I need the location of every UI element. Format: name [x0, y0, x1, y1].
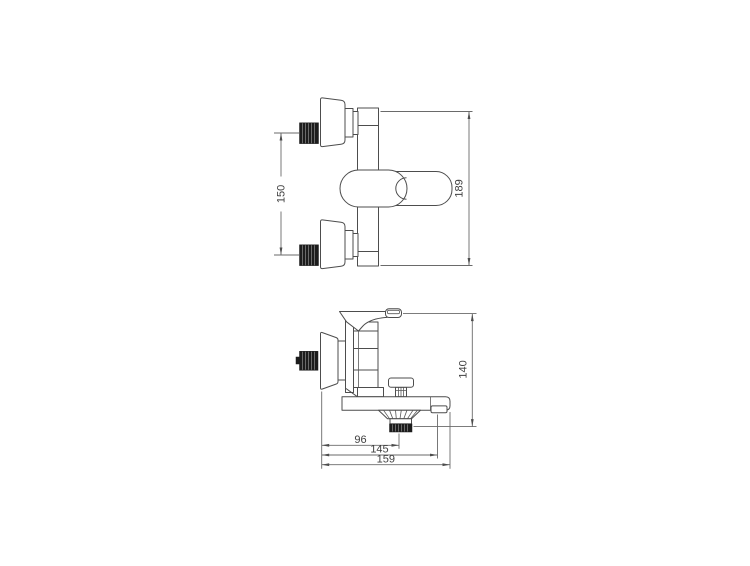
side-view: 140 96 145 159: [296, 309, 477, 469]
drawing-svg: 150 189: [0, 0, 750, 566]
dim-label-189: 189: [454, 179, 466, 197]
side-escutcheon: [321, 332, 339, 389]
front-inlet-upper: [300, 98, 359, 147]
front-dim-150: 150: [274, 133, 299, 255]
side-aerator-detail: [431, 406, 447, 413]
dim-label-140: 140: [458, 360, 470, 378]
side-back-plate: [346, 318, 354, 393]
front-handle-cap: [340, 170, 407, 207]
side-diverter-knob: [389, 378, 414, 397]
dim-label-96: 96: [354, 434, 366, 446]
side-shower-outlet: [379, 410, 421, 432]
side-body: [354, 322, 379, 388]
technical-drawing-canvas: 150 189: [0, 0, 750, 566]
dim-label-159: 159: [377, 453, 395, 465]
front-inlet-lower: [300, 220, 359, 269]
front-view: 150 189: [274, 98, 473, 269]
dim-label-150: 150: [276, 185, 288, 203]
